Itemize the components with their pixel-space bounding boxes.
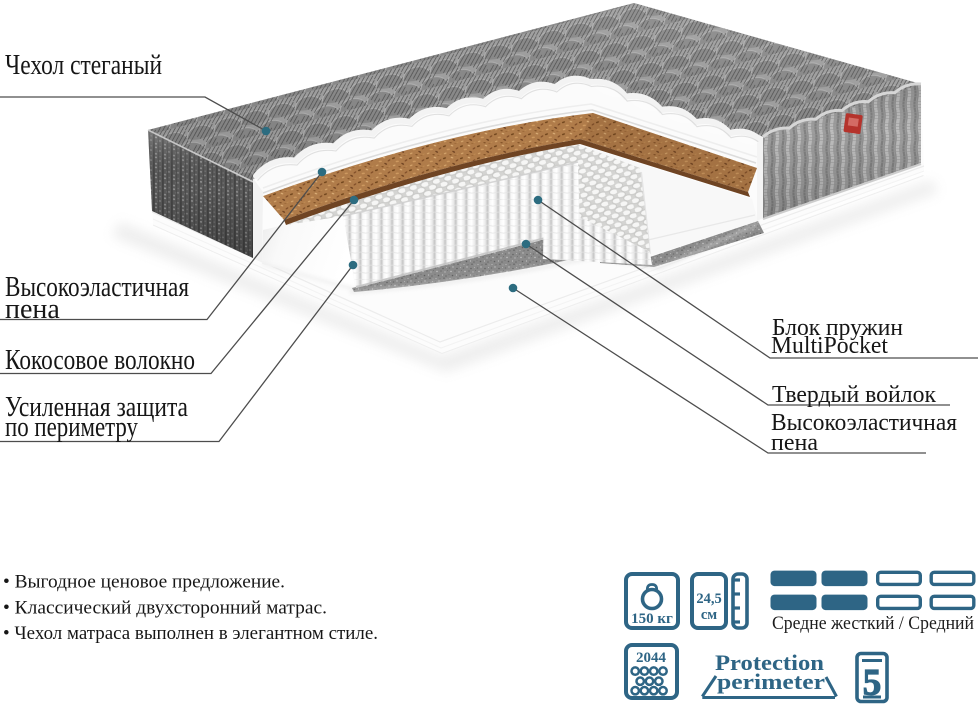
svg-text:MultiPocket: MultiPocket [771, 333, 888, 359]
svg-text:по периметру: по периметру [5, 412, 138, 443]
svg-text:• Выгодное ценовое предложение: • Выгодное ценовое предложение. [3, 573, 285, 593]
svg-text:пена: пена [5, 294, 60, 325]
svg-text:пена: пена [771, 430, 818, 456]
svg-text:2044: 2044 [636, 650, 667, 666]
svg-text:24,5: 24,5 [696, 591, 721, 607]
svg-text:perimeter: perimeter [717, 669, 825, 694]
svg-text:Твердый войлок: Твердый войлок [772, 382, 936, 408]
svg-text:150 кг: 150 кг [631, 611, 673, 627]
svg-text:• Чехол матраса выполнен в эле: • Чехол матраса выполнен в элегантном ст… [3, 624, 378, 644]
svg-text:• Классический двухсторонний м: • Классический двухсторонний матрас. [3, 599, 327, 619]
svg-text:Средне жесткий / Средний: Средне жесткий / Средний [772, 613, 974, 634]
svg-text:Кокосовое волокно: Кокосовое волокно [5, 345, 195, 376]
svg-text:см: см [701, 607, 717, 623]
svg-text:Чехол стеганый: Чехол стеганый [5, 50, 162, 81]
